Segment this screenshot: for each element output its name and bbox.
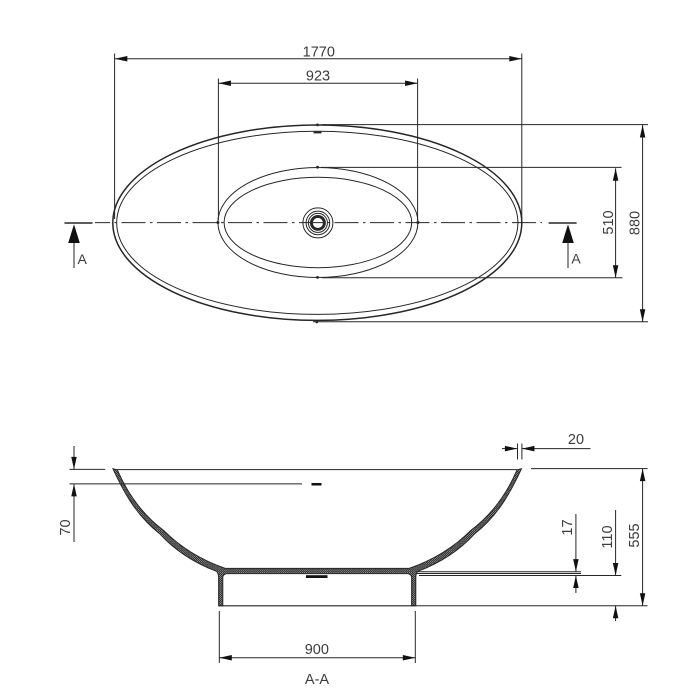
svg-text:510: 510 (601, 210, 617, 234)
svg-text:A: A (78, 251, 88, 267)
svg-text:17: 17 (560, 519, 576, 535)
svg-text:20: 20 (568, 432, 584, 448)
svg-text:A: A (571, 251, 581, 267)
svg-text:880: 880 (627, 211, 643, 235)
svg-text:555: 555 (627, 523, 643, 547)
svg-text:A-A: A-A (305, 672, 330, 688)
svg-text:923: 923 (306, 69, 330, 85)
svg-text:900: 900 (305, 642, 329, 658)
svg-text:70: 70 (58, 519, 74, 535)
svg-text:1770: 1770 (303, 45, 335, 61)
svg-text:110: 110 (600, 525, 616, 548)
